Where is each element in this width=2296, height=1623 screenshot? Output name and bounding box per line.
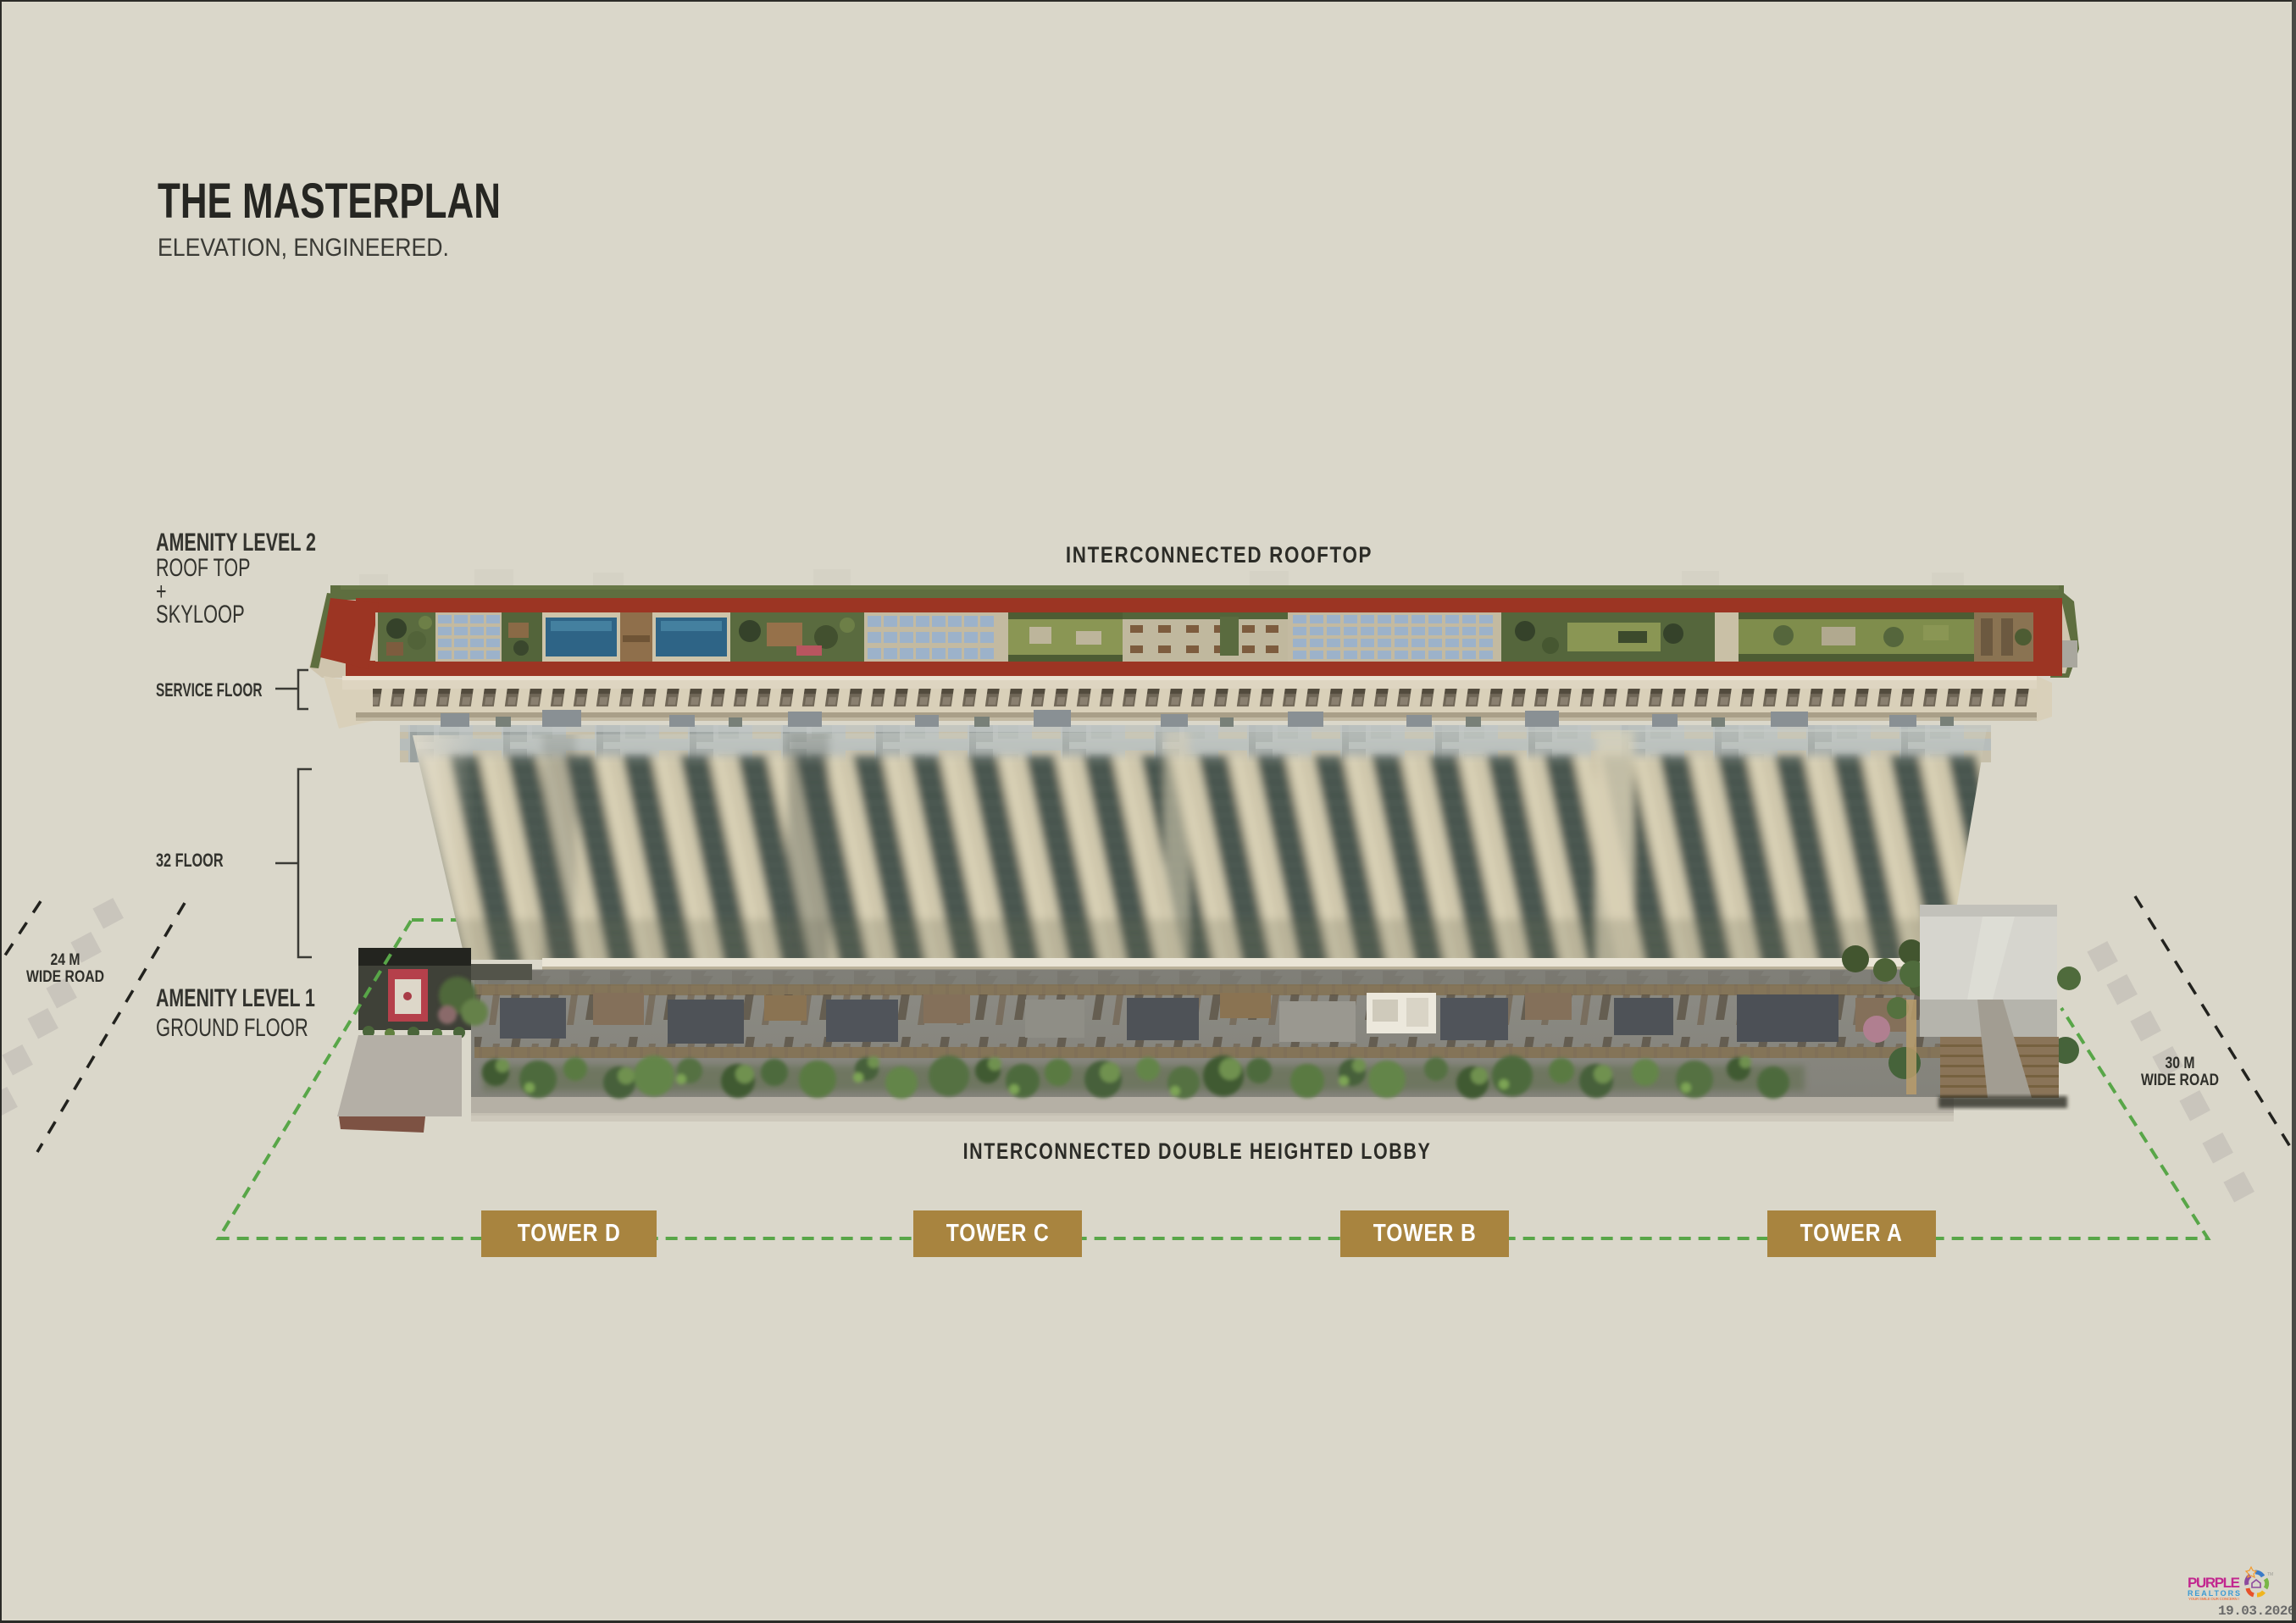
svg-text:TM: TM (2267, 1572, 2273, 1577)
svg-text:YOUR SMILE OUR CONCERN !: YOUR SMILE OUR CONCERN ! (2188, 1597, 2240, 1601)
